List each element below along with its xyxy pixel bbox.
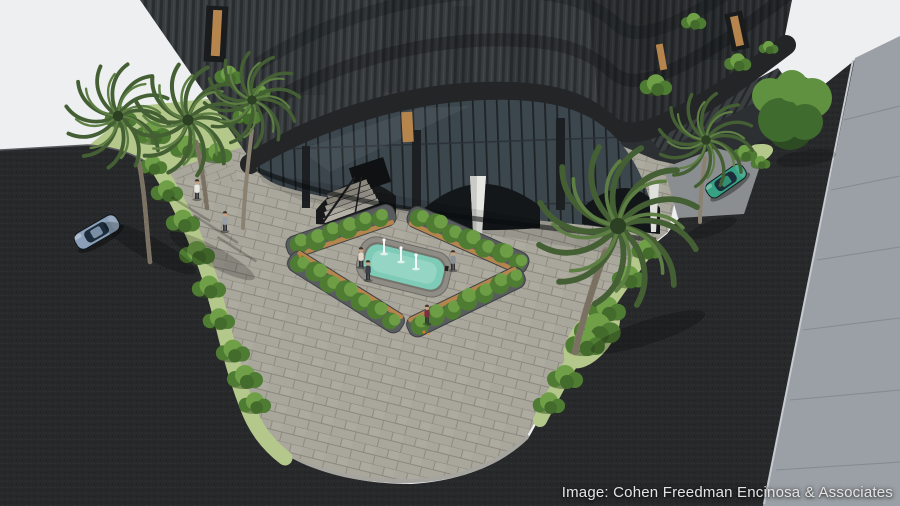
corner-wood-mullion [401, 112, 414, 143]
palm-tree [536, 144, 701, 309]
rendering-canvas: Image: Cohen Freedman Encinosa & Associa… [0, 0, 900, 506]
architectural-rendering [0, 0, 900, 506]
image-credit-caption: Image: Cohen Freedman Encinosa & Associa… [562, 484, 893, 501]
